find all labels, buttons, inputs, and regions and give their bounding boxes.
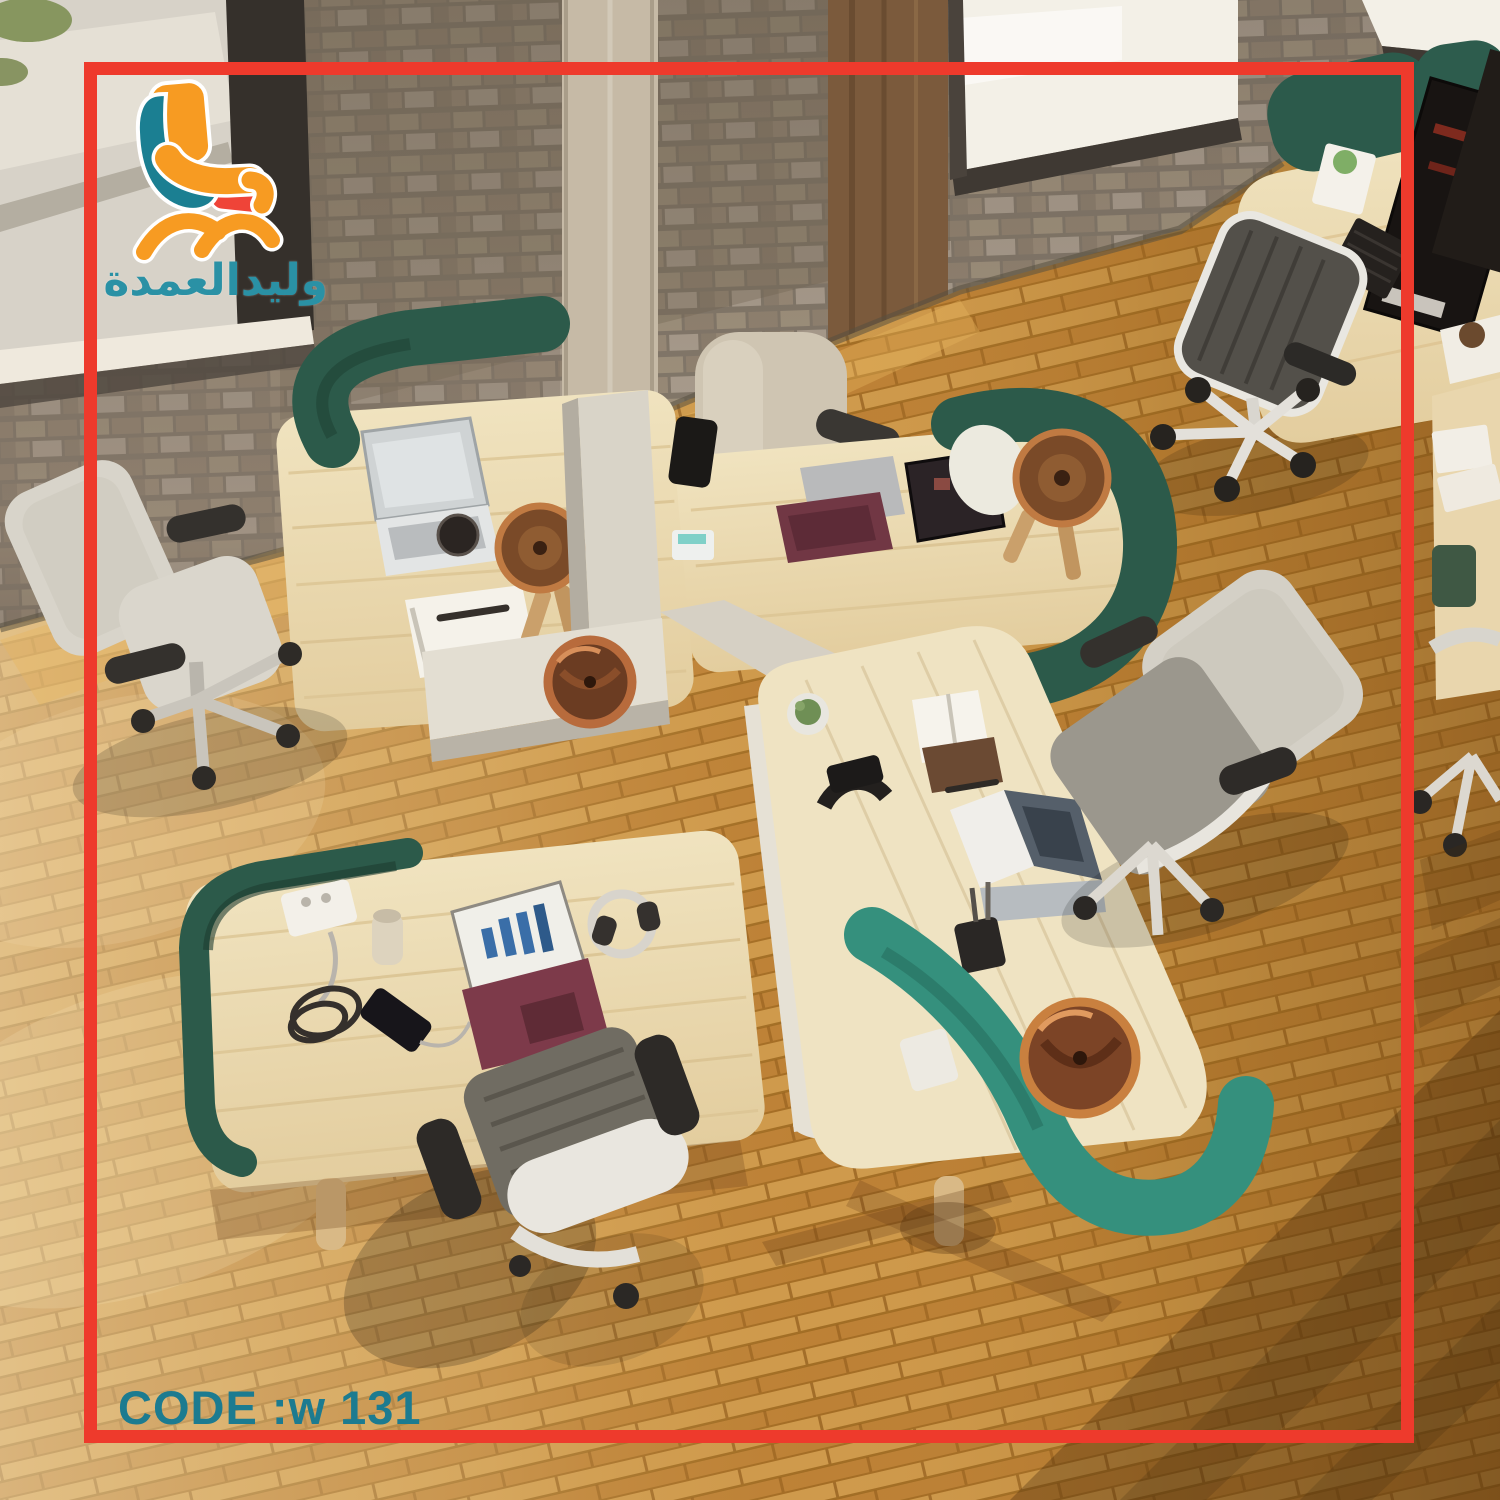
brand-logo-text: وليدالعمدة: [116, 258, 328, 304]
coffee-cup: [438, 515, 478, 555]
product-code-label: CODE :w 131: [118, 1380, 422, 1435]
bottle: [372, 909, 403, 965]
coffee-cup: [1459, 322, 1485, 348]
copper-bowl-lamp: [1024, 1002, 1136, 1114]
chair-logo-icon: [122, 74, 322, 264]
desk-plant-pot: [1432, 545, 1476, 607]
brand-logo: وليدالعمدة: [116, 74, 328, 304]
succulent-plant: [787, 693, 829, 735]
desk-plant: [1333, 150, 1357, 174]
logo-seat: [168, 158, 250, 181]
copper-bowl-center: [548, 640, 632, 724]
logo-leg-arc: [202, 221, 272, 250]
furniture-ad-poster: وليدالعمدة CODE :w 131: [0, 0, 1500, 1500]
